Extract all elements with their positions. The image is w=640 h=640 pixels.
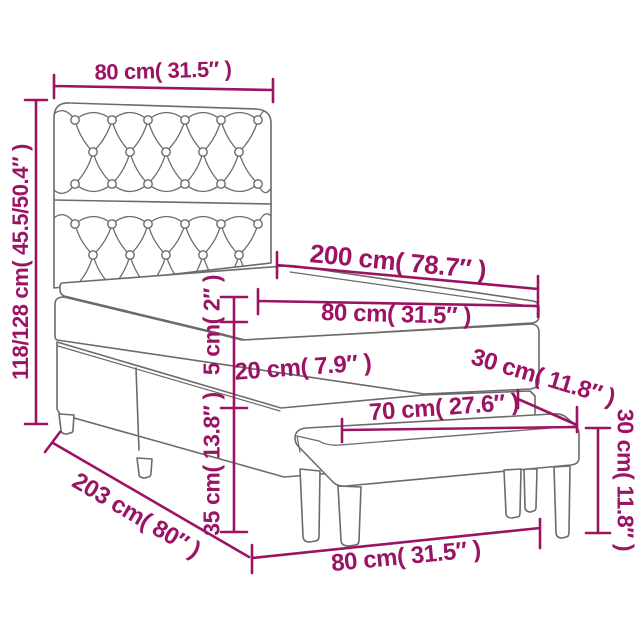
bench-leg (554, 466, 570, 538)
headboard (54, 103, 271, 296)
dim-label-bed-width: 80 cm( 31.5″ ) (321, 299, 472, 331)
bench-leg (504, 469, 521, 518)
bench-leg (338, 486, 361, 546)
dim-label-headboard-height: 118/128 cm( 45.5/50.4″ ) (8, 144, 34, 380)
dim-label-base-height: 35 cm( 13.8″ ) (199, 392, 226, 536)
bench-leg (300, 469, 320, 542)
dim-label-bench-height: 30 cm( 11.8″ ) (612, 409, 639, 551)
bed-leg (137, 458, 152, 478)
dim-label-topper-height: 5 cm( 2″ ) (199, 275, 226, 375)
dimension-diagram: 80 cm( 31.5″ ) 118/128 cm( 45.5/50.4″ ) … (0, 0, 640, 640)
dim-label-headboard-width: 80 cm( 31.5″ ) (94, 56, 232, 86)
dim-line-bench-height (586, 428, 610, 533)
bed-leg (524, 469, 537, 512)
bed-leg (59, 414, 74, 434)
